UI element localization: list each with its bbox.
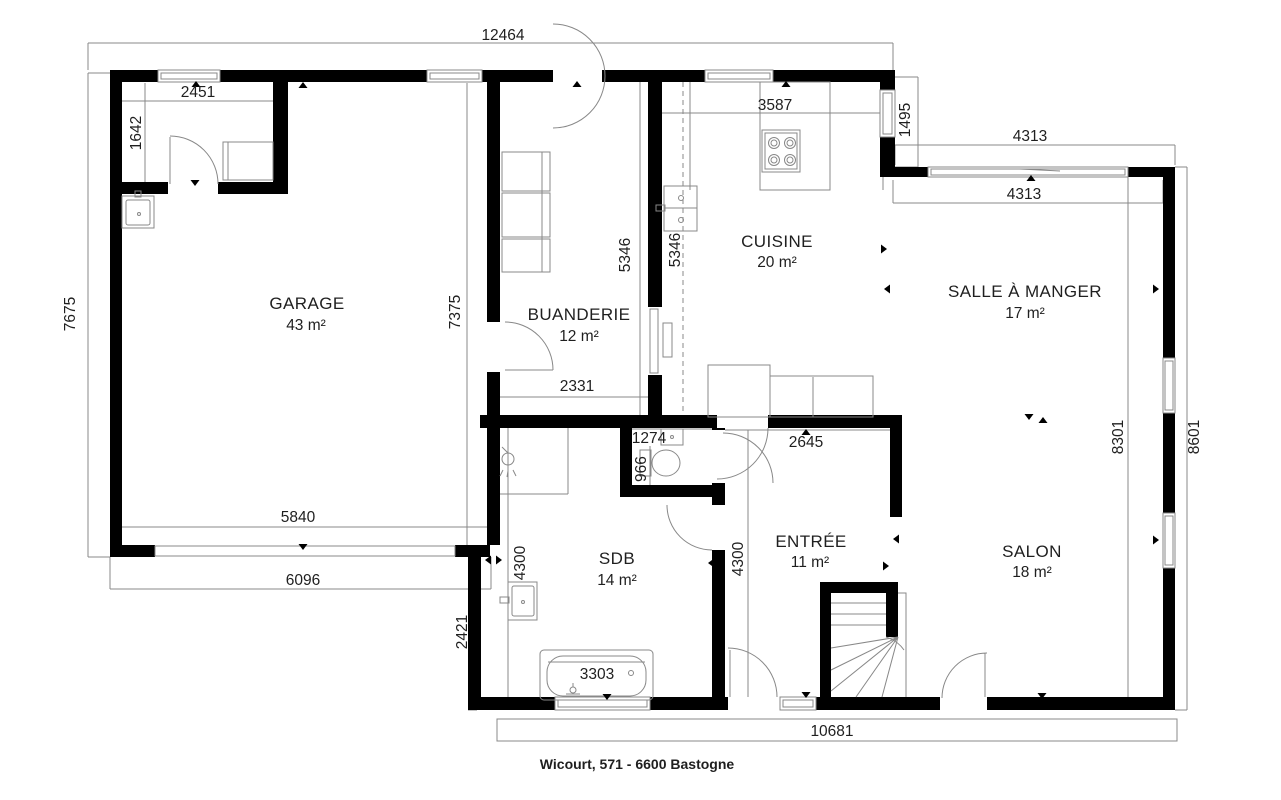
- dim-kitchen-top: 3587: [758, 97, 792, 114]
- door-arcs: [170, 24, 987, 698]
- address-caption: Wicourt, 571 - 6600 Bastogne: [540, 756, 735, 772]
- dim-wc-width: 1274: [632, 430, 667, 447]
- dim-hall-height: 4300: [730, 541, 747, 576]
- sink-icon: [500, 582, 537, 620]
- wall: [820, 582, 898, 593]
- window: [780, 697, 816, 710]
- window: [880, 90, 895, 137]
- garage-door: [155, 546, 455, 556]
- sink-icon: [122, 191, 154, 228]
- room-area-hall: 11 m²: [791, 554, 829, 571]
- room-label-hall: ENTRÉE: [775, 532, 846, 551]
- dim-kitchen-height: 5346: [667, 233, 684, 267]
- dim-laundry-width: 2331: [560, 378, 594, 395]
- door-arc: [170, 136, 218, 184]
- floor-plan: 12464 2451 1642 3587 1495 4313 4313 7675…: [0, 0, 1281, 800]
- wall: [487, 417, 500, 545]
- dim-garage-bottom-inner: 5840: [281, 509, 316, 526]
- dim-wc-height: 966: [633, 456, 650, 482]
- wall: [122, 182, 168, 194]
- cabinet: [223, 142, 273, 180]
- room-label-living: SALON: [1002, 542, 1062, 561]
- room-area-garage: 43 m²: [286, 317, 326, 334]
- window: [158, 70, 220, 82]
- dim-top-outer-width: 12464: [481, 27, 524, 44]
- floor-plan-drawing: 12464 2451 1642 3587 1495 4313 4313 7675…: [0, 0, 1281, 800]
- wall: [110, 70, 895, 82]
- sideboard: [708, 365, 873, 417]
- door-arc: [728, 648, 777, 697]
- dim-dining-top-inner: 4313: [1007, 186, 1041, 203]
- dimension-labels: 12464 2451 1642 3587 1495 4313 4313 7675…: [62, 27, 1203, 740]
- wall: [820, 582, 831, 703]
- room-label-dining: SALLE À MANGER: [948, 282, 1102, 301]
- dim-laundry-height: 5346: [617, 238, 634, 272]
- fixtures: [122, 82, 906, 700]
- dim-garage-left-outer: 7675: [62, 297, 79, 331]
- room-area-bath: 14 m²: [597, 572, 637, 589]
- dim-right-inner-height: 8301: [1110, 420, 1127, 454]
- room-area-living: 18 m²: [1012, 564, 1052, 581]
- wall: [890, 417, 902, 517]
- room-labels: GARAGE 43 m² BUANDERIE 12 m² CUISINE 20 …: [269, 232, 1102, 589]
- window: [928, 167, 1128, 177]
- laundry-cabinets: [502, 152, 550, 272]
- wall: [218, 182, 288, 194]
- walls: [110, 70, 1175, 710]
- dim-left-step: 2421: [454, 615, 471, 649]
- windows: [155, 70, 1175, 710]
- dim-storage-width: 2451: [181, 84, 215, 101]
- shower-icon: [500, 428, 568, 494]
- dim-kitchen-right: 1495: [897, 103, 914, 137]
- window: [705, 70, 773, 82]
- dim-bath-height: 4300: [512, 545, 529, 580]
- dim-right-outer-height: 8601: [1186, 420, 1203, 454]
- window: [1163, 513, 1175, 568]
- room-label-garage: GARAGE: [269, 294, 344, 313]
- room-label-bath: SDB: [599, 549, 635, 568]
- dim-dining-top-outer: 4313: [1013, 128, 1047, 145]
- wall: [1163, 167, 1175, 710]
- door-arc: [667, 505, 712, 550]
- dim-storage-height: 1642: [128, 116, 145, 150]
- room-label-kitchen: CUISINE: [741, 232, 813, 251]
- window: [427, 70, 482, 82]
- dim-bottom-outer-width: 10681: [810, 723, 853, 740]
- dim-hall-top: 2645: [789, 434, 823, 451]
- wall: [886, 593, 898, 637]
- wall: [273, 73, 288, 182]
- dim-garage-right-inner: 7375: [447, 295, 464, 329]
- door-arc: [505, 322, 553, 370]
- room-area-kitchen: 20 m²: [757, 254, 797, 271]
- room-area-dining: 17 m²: [1005, 305, 1045, 322]
- dimension-lines: [88, 43, 1187, 741]
- door-arc: [942, 653, 987, 698]
- room-area-laundry: 12 m²: [559, 328, 599, 345]
- dim-bathtub-width: 3303: [580, 666, 614, 683]
- room-label-laundry: BUANDERIE: [528, 305, 631, 324]
- window: [555, 697, 650, 710]
- stove-icon: [762, 130, 800, 172]
- window: [1163, 358, 1175, 413]
- sink-icon: [656, 186, 697, 231]
- dim-garage-bottom-outer: 6096: [286, 572, 320, 589]
